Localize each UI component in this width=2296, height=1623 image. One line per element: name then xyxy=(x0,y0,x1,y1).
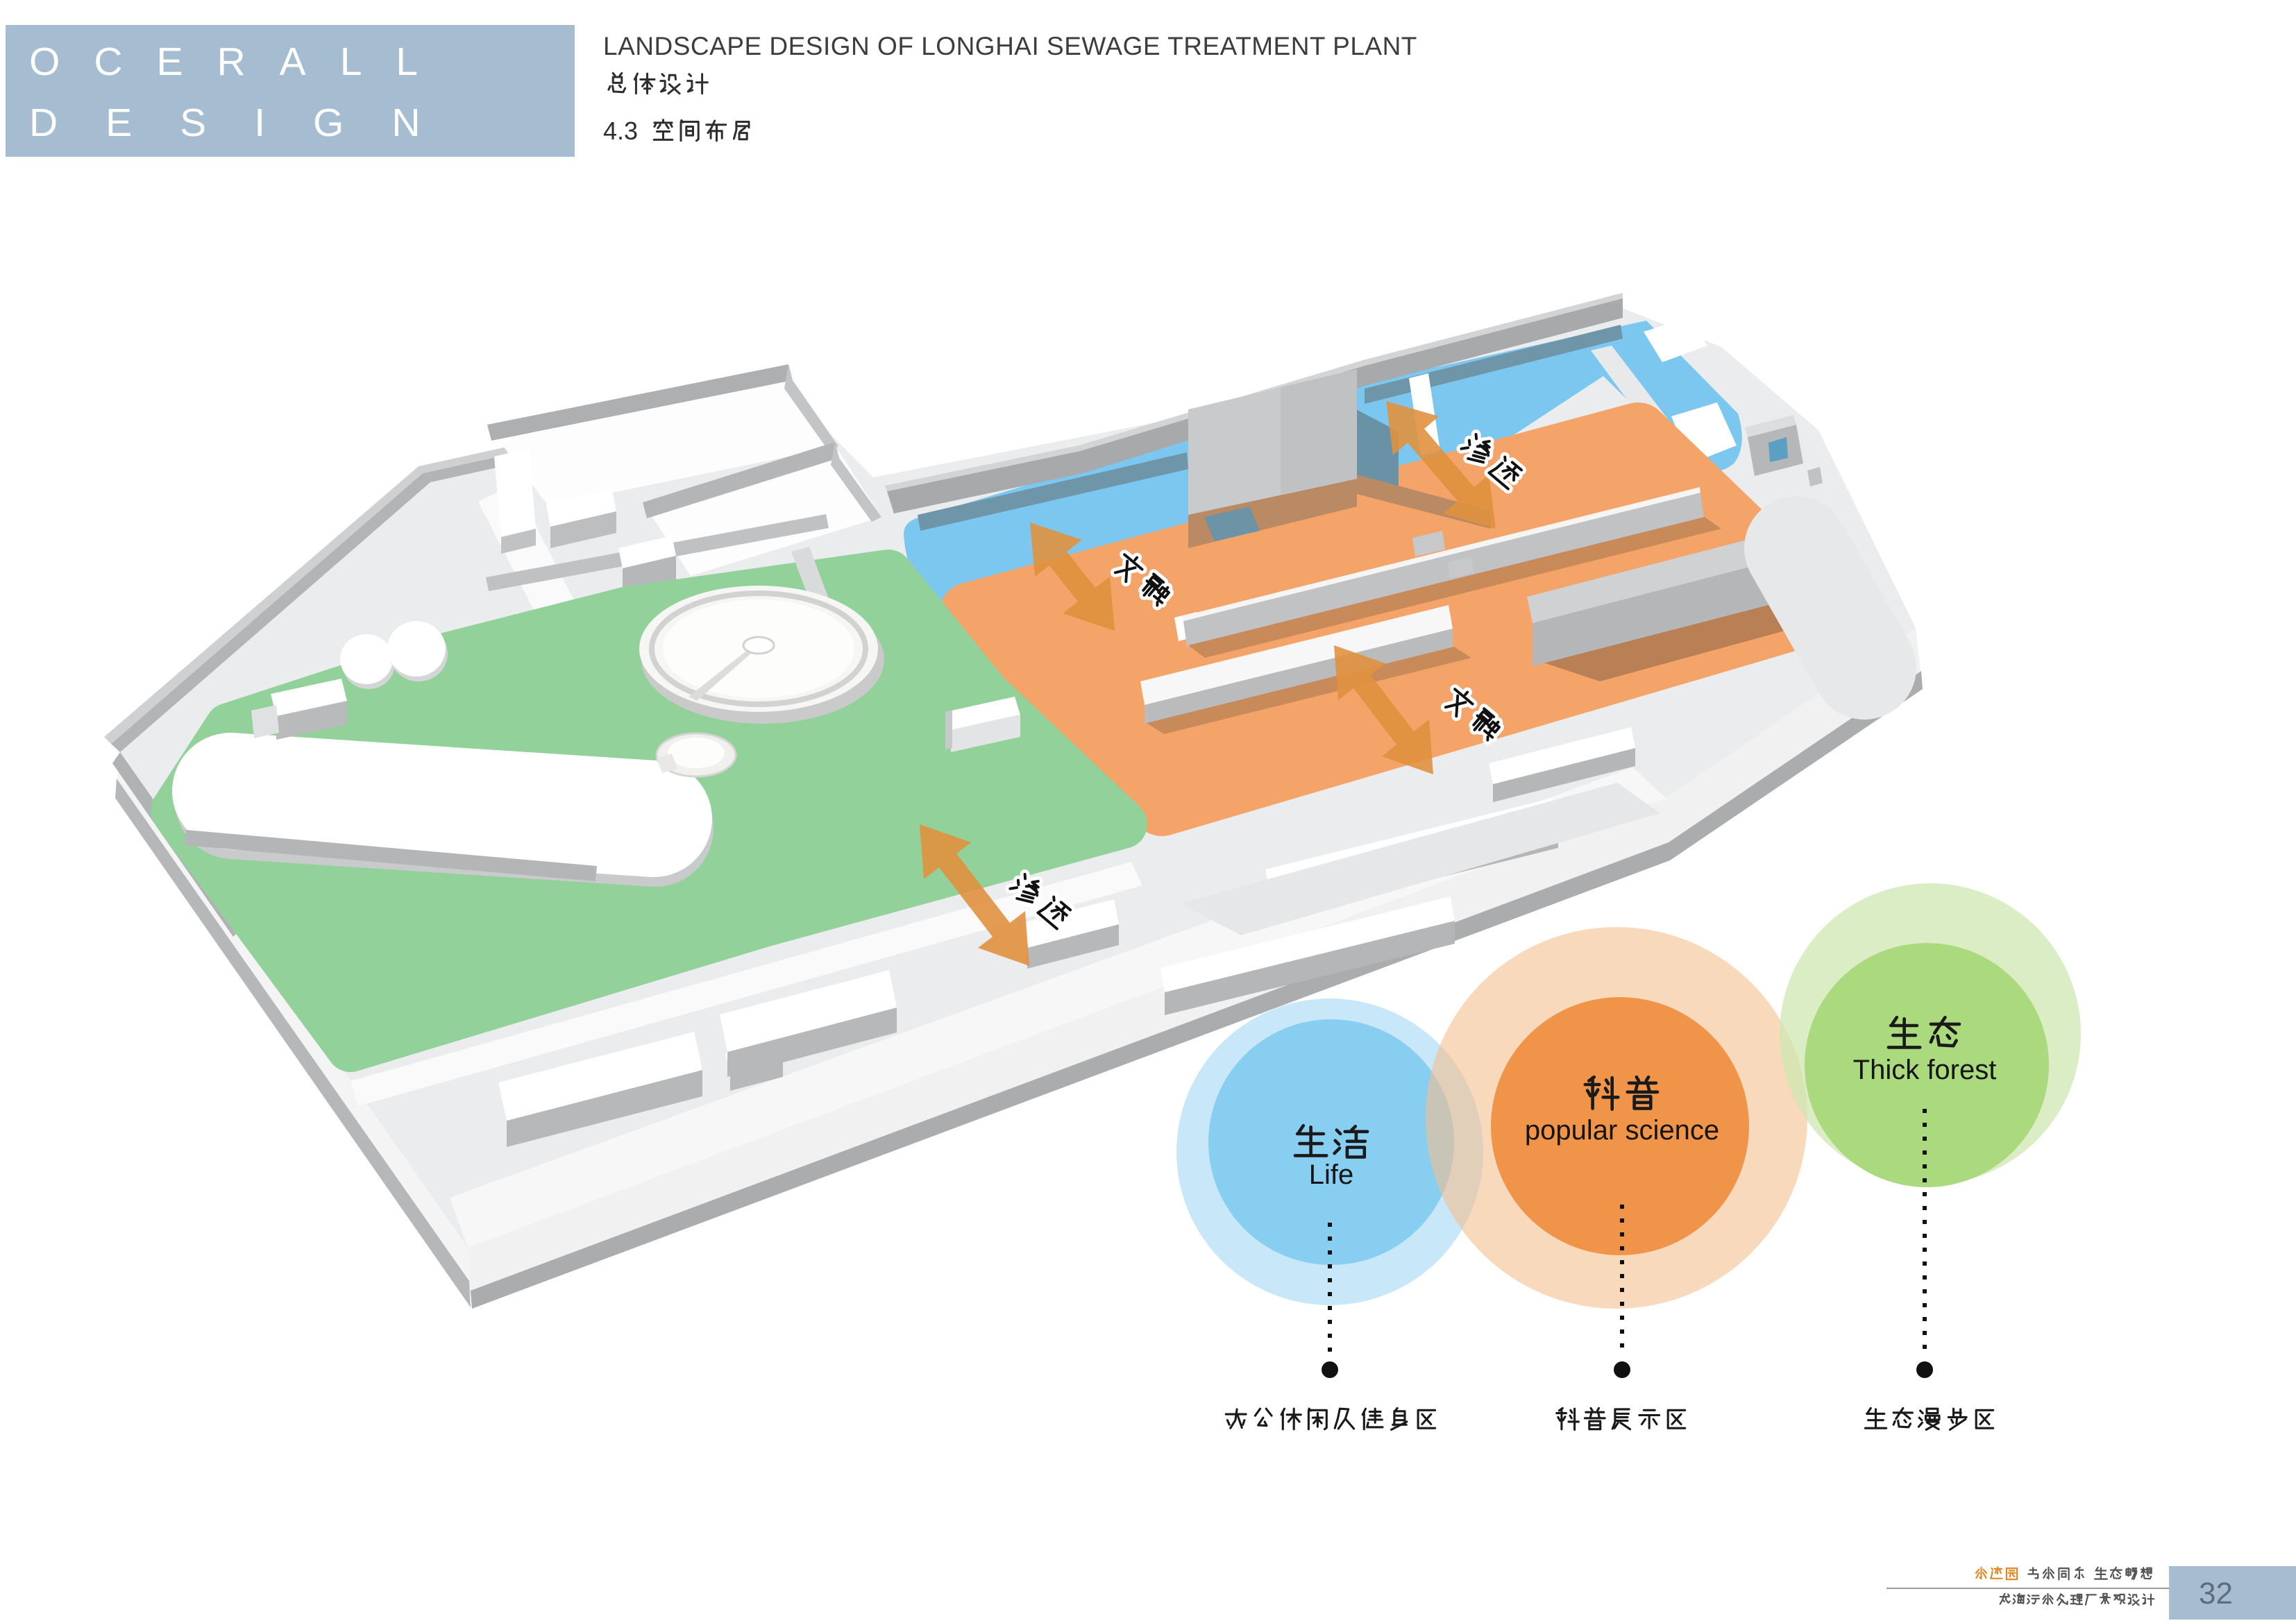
svg-text:Thick forest: Thick forest xyxy=(1853,1055,1997,1085)
svg-text:popular science: popular science xyxy=(1525,1115,1719,1146)
svg-text:Life: Life xyxy=(1309,1159,1354,1190)
